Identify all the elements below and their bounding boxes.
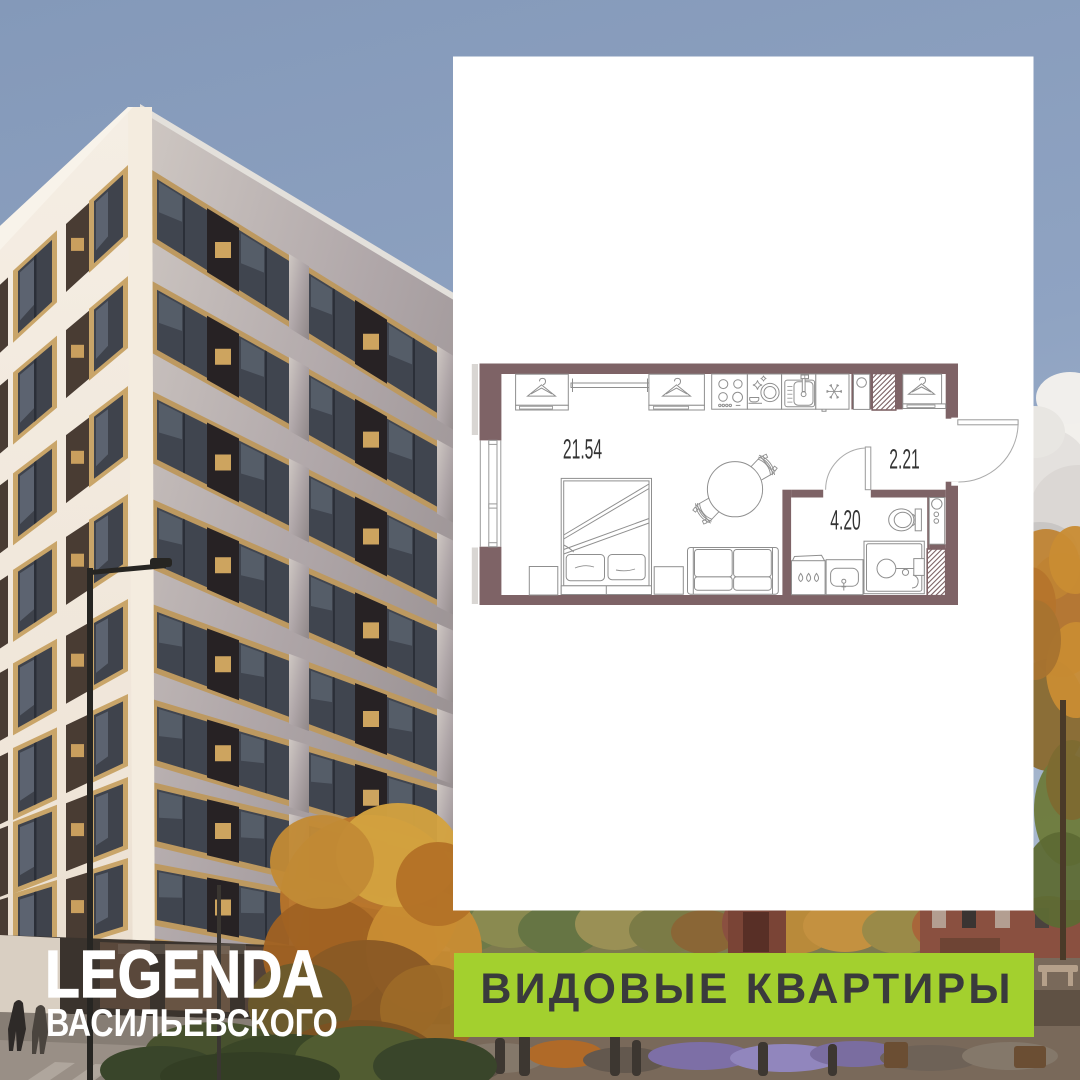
svg-text:2.21: 2.21: [889, 444, 920, 475]
svg-text:21.54: 21.54: [563, 434, 602, 465]
svg-text:4.20: 4.20: [830, 505, 861, 536]
